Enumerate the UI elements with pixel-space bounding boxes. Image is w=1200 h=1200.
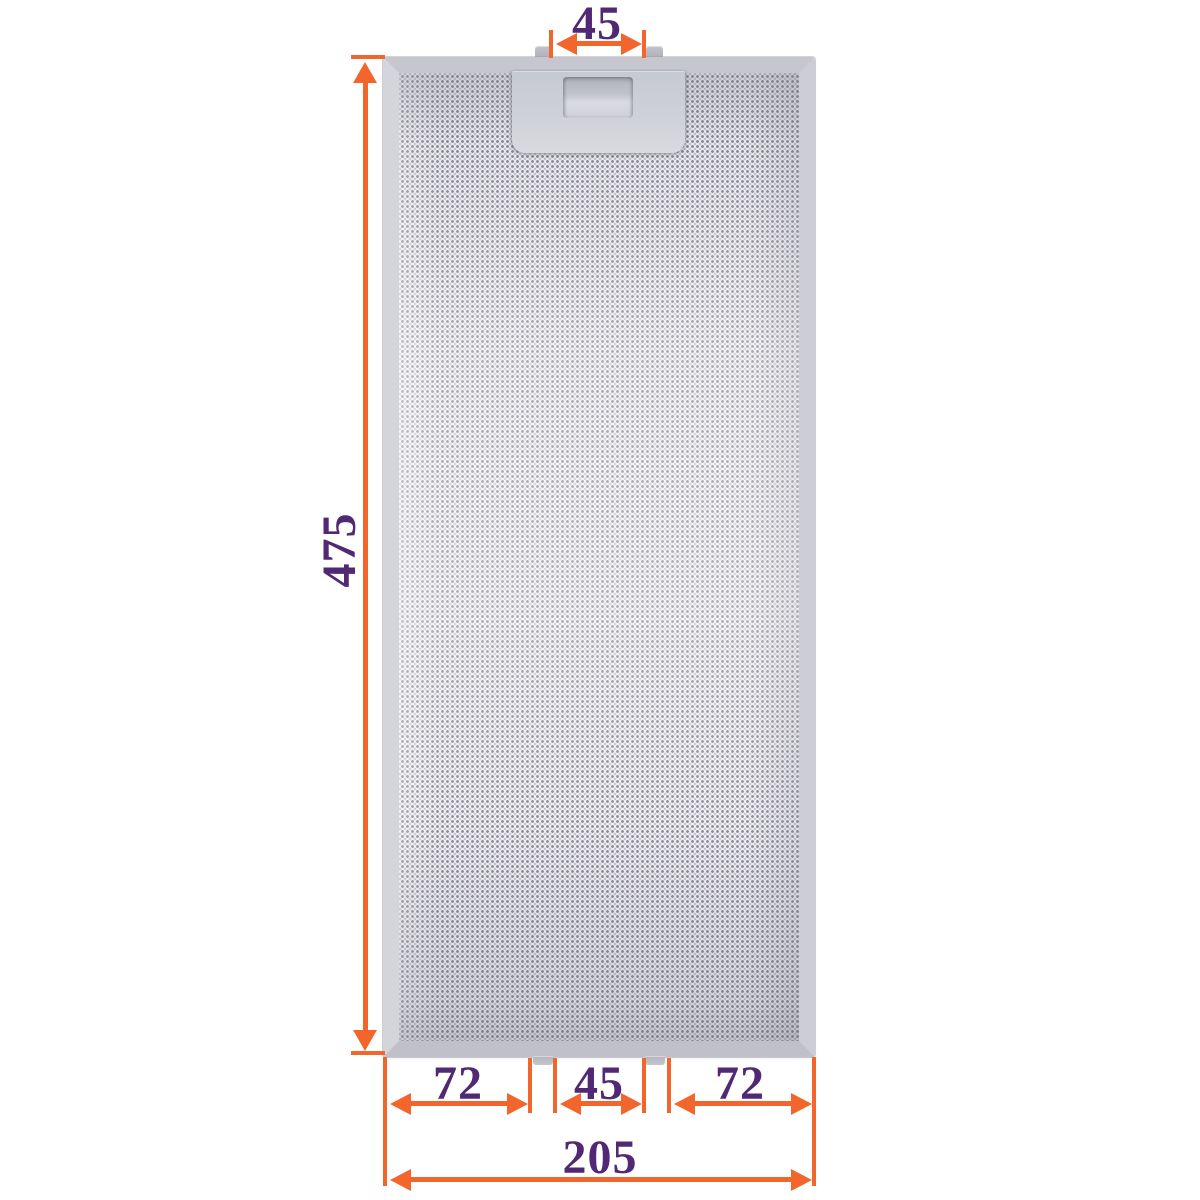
product-dimension-diagram: 45 475 72 45 72 205 (0, 0, 1200, 1200)
dim-label-height: 475 (295, 490, 385, 610)
dim-label-bottom-left: 72 (408, 1060, 508, 1108)
arrowhead-down-icon (353, 1030, 377, 1054)
dim-label-bottom-center: 45 (549, 1060, 649, 1108)
dim-ext-bottom-left (383, 1057, 387, 1186)
latch-recess (563, 77, 633, 118)
filter-mesh (399, 73, 799, 1041)
filter-frame (383, 57, 815, 1057)
dim-label-total-width: 205 (525, 1134, 675, 1182)
dim-label-bottom-right: 72 (690, 1060, 790, 1108)
latch-handle (512, 71, 685, 153)
dim-label-top-tab-width: 45 (547, 0, 647, 48)
dim-ext-bottom-right (812, 1057, 816, 1186)
